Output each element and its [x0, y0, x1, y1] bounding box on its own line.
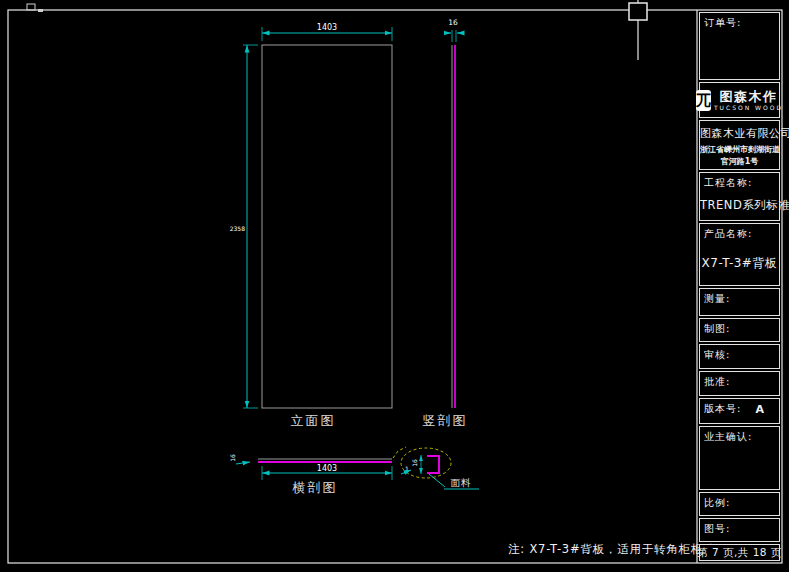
version-value: A: [755, 400, 764, 416]
drawing-note: 注: X7-T-3#背板，适用于转角柜柜体: [508, 542, 716, 556]
elevation-height-dim: 2358: [230, 225, 245, 232]
vertical-section-view-label: 竖剖图: [423, 413, 468, 428]
elevation-view-label: 立面图: [291, 413, 336, 428]
titleblock-row-approve: 批准:: [699, 371, 780, 396]
company-name: 图森木业有限公司: [700, 126, 779, 141]
titleblock-row-page: 第 7 页,共 18 页: [699, 544, 780, 561]
titleblock-row-review: 审核:: [699, 344, 780, 369]
drawing-no-label: 图号:: [700, 519, 779, 536]
company-address-line2: 官河路1号: [700, 156, 779, 168]
panel-edge-profile: [427, 456, 439, 473]
material-label: 面料: [451, 477, 472, 488]
review-label: 审核:: [700, 345, 779, 362]
approve-label: 批准:: [700, 372, 779, 389]
titleblock-row-version: 版本号: A: [699, 398, 780, 424]
product-name-value: X7-T-3#背板: [700, 255, 779, 272]
brand-name-en: TUCSON WOOD: [714, 105, 783, 111]
product-name-label: 产品名称:: [700, 224, 779, 241]
detail-callout: 16 1 面料: [393, 447, 479, 489]
titleblock-row-scale: 比例:: [699, 492, 780, 516]
project-name-value: TREND系列标准图: [700, 198, 779, 213]
tucson-logo-icon: 兀: [696, 90, 711, 111]
company-address-line1: 浙江省嵊州市剡湖街道: [700, 144, 779, 156]
titleblock-row-logo: 兀 图森木作 TUCSON WOOD: [699, 82, 780, 118]
project-name-label: 工程名称:: [700, 173, 779, 190]
vertical-section-thickness-dim: 16: [448, 18, 458, 27]
horizontal-section-width-dim: 1403: [317, 464, 337, 473]
detail-thickness-dim: 16: [411, 459, 418, 467]
leader-line: [429, 474, 445, 487]
titleblock-row-project: 工程名称: TREND系列标准图: [699, 172, 780, 221]
scale-label: 比例:: [700, 493, 779, 510]
horizontal-section-view: 16 1403 横剖图: [229, 454, 392, 495]
titleblock-row-company: 图森木业有限公司 浙江省嵊州市剡湖街道 官河路1号: [699, 120, 780, 170]
drawing-area: 1403 2358 立面图 16 竖剖图 16: [0, 0, 789, 572]
brand-name-cn: 图森木作: [720, 90, 778, 103]
owner-confirm-label: 业主确认:: [700, 427, 779, 444]
corner-marks: [27, 4, 43, 12]
vertical-section-view: 16 竖剖图: [423, 18, 468, 428]
cad-sheet: 1403 2358 立面图 16 竖剖图 16: [0, 0, 789, 572]
measure-label: 测量:: [700, 289, 779, 306]
draft-label: 制图:: [700, 319, 779, 336]
detail-cloud: [401, 448, 451, 478]
titleblock-row-order: 订单号:: [699, 12, 780, 80]
horizontal-section-thickness-dim: 16: [229, 454, 236, 462]
titleblock-row-drawing-no: 图号:: [699, 518, 780, 542]
crosshair-mark: [629, 0, 647, 60]
version-label: 版本号:: [700, 399, 741, 416]
panel-outline: [262, 45, 392, 408]
titleblock-row-product: 产品名称: X7-T-3#背板: [699, 223, 780, 286]
horizontal-section-view-label: 横剖图: [292, 480, 338, 495]
order-number-label: 订单号:: [700, 13, 779, 30]
elevation-width-dim: 1403: [317, 23, 337, 32]
titleblock-row-draft: 制图:: [699, 318, 780, 342]
titleblock-row-measure: 测量:: [699, 288, 780, 316]
page-frame: [8, 10, 782, 563]
page-info: 第 7 页,共 18 页: [697, 546, 782, 560]
titleblock-row-owner-confirm: 业主确认:: [699, 426, 780, 490]
elevation-view: 1403 2358 立面图: [230, 23, 392, 428]
